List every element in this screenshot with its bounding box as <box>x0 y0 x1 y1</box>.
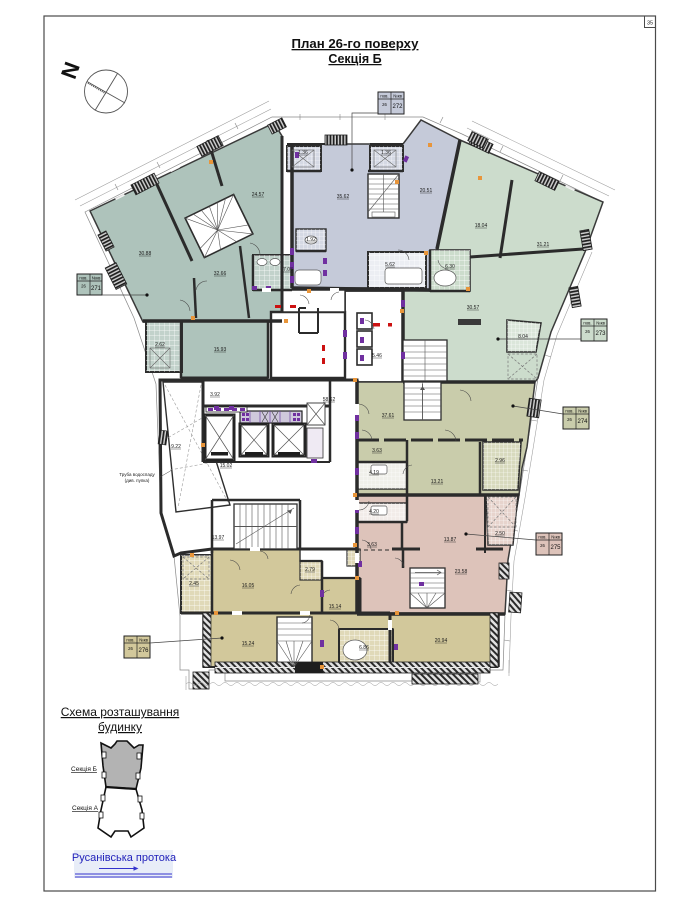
svg-text:274: 274 <box>577 419 588 425</box>
svg-text:Секція Б: Секція Б <box>328 52 381 66</box>
svg-text:№кв: №кв <box>578 409 587 414</box>
svg-text:будинку: будинку <box>98 720 142 734</box>
svg-text:Секція Б: Секція Б <box>71 765 97 773</box>
svg-text:26: 26 <box>585 329 590 334</box>
svg-text:26: 26 <box>540 543 545 548</box>
svg-text:271: 271 <box>91 286 102 292</box>
svg-text:№кв: №кв <box>596 321 605 326</box>
svg-text:35: 35 <box>647 21 653 27</box>
svg-text:Схема розташування: Схема розташування <box>61 705 180 719</box>
svg-text:26: 26 <box>81 284 86 289</box>
svg-text:№кв: №кв <box>92 276 101 281</box>
svg-text:276: 276 <box>138 648 149 654</box>
svg-text:(див. пупка): (див. пупка) <box>125 478 150 483</box>
svg-text:Секція А: Секція А <box>72 804 99 812</box>
svg-text:пов.: пов. <box>583 321 591 326</box>
svg-text:План 26-го поверху: План 26-го поверху <box>292 36 420 51</box>
svg-text:26: 26 <box>382 102 387 107</box>
svg-text:№кв: №кв <box>393 94 402 99</box>
svg-text:пов.: пов. <box>538 535 546 540</box>
svg-text:пов.: пов. <box>126 638 134 643</box>
svg-text:Русанівська протока: Русанівська протока <box>72 852 177 864</box>
svg-text:26: 26 <box>128 646 133 651</box>
svg-text:пов.: пов. <box>565 409 573 414</box>
svg-text:№кв: №кв <box>139 638 148 643</box>
svg-text:пов.: пов. <box>79 276 87 281</box>
svg-text:№кв: №кв <box>551 535 560 540</box>
svg-text:пов.: пов. <box>380 94 388 99</box>
svg-text:273: 273 <box>595 331 606 337</box>
svg-text:Труба водоспаду: Труба водоспаду <box>119 472 155 477</box>
svg-text:26: 26 <box>567 417 572 422</box>
svg-text:275: 275 <box>550 545 561 551</box>
svg-text:272: 272 <box>392 104 403 110</box>
